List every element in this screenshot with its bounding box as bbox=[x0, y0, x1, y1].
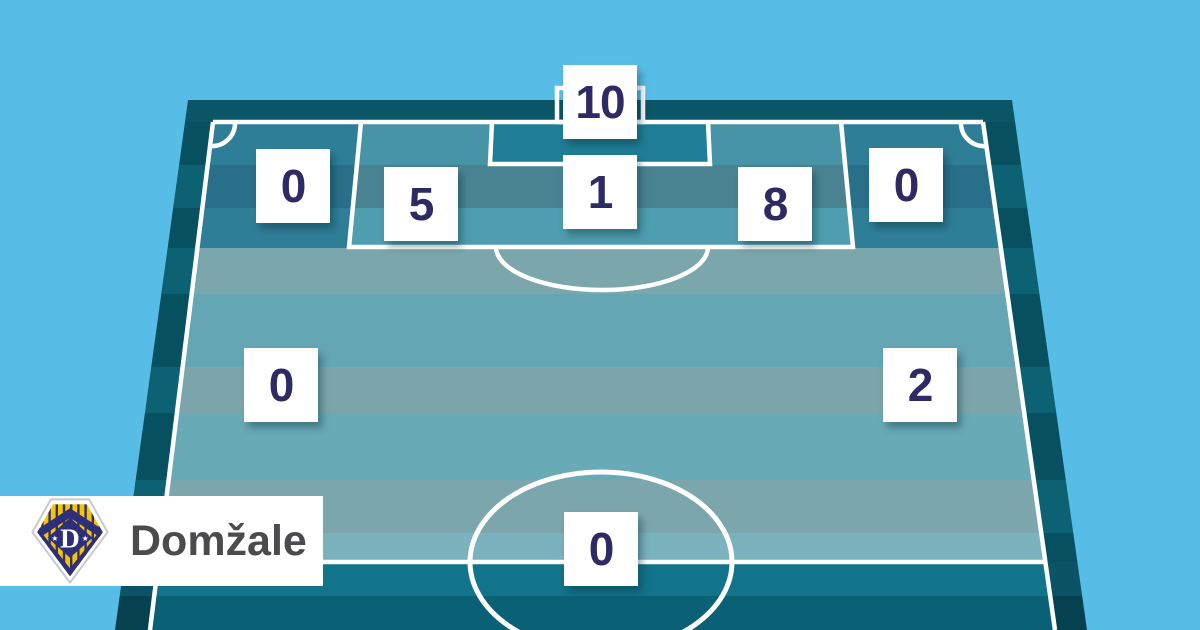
team-name: Domžale bbox=[130, 520, 307, 563]
domzale-crest-icon: ★ ★ D bbox=[30, 497, 110, 585]
svg-text:★: ★ bbox=[51, 534, 58, 543]
pitch-zone-graphic: 10 0 5 1 8 0 0 2 0 bbox=[0, 0, 1200, 630]
zone-tile-goal: 10 bbox=[563, 65, 637, 139]
svg-text:D: D bbox=[60, 523, 80, 553]
svg-text:★: ★ bbox=[82, 534, 89, 543]
zone-tile-middle-right: 2 bbox=[883, 348, 957, 422]
zone-tile-attacking-right-flank: 0 bbox=[869, 148, 943, 222]
team-banner: ★ ★ D Domžale bbox=[0, 496, 323, 586]
zone-tile-penalty-area-center: 1 bbox=[563, 155, 637, 229]
zone-tile-penalty-area-right: 8 bbox=[738, 167, 812, 241]
zone-tile-middle-left: 0 bbox=[244, 348, 318, 422]
zone-tile-own-half-center: 0 bbox=[564, 512, 638, 586]
zone-tile-attacking-left-flank: 0 bbox=[256, 149, 330, 223]
zone-tile-penalty-area-left: 5 bbox=[384, 167, 458, 241]
